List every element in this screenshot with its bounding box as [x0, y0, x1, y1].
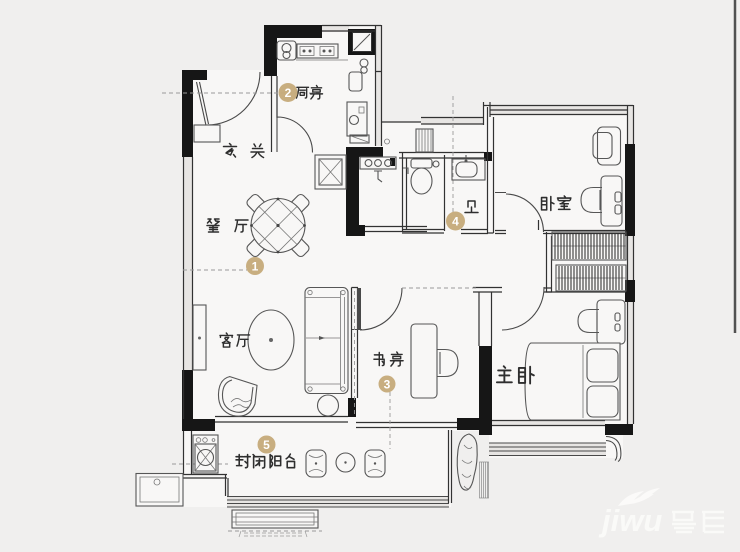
svg-text:2: 2	[285, 86, 292, 100]
svg-text:4: 4	[452, 215, 459, 229]
svg-text:jiwu: jiwu	[598, 503, 662, 538]
svg-text:1: 1	[252, 260, 259, 274]
svg-text:3: 3	[384, 378, 391, 392]
svg-text:5: 5	[263, 438, 270, 452]
